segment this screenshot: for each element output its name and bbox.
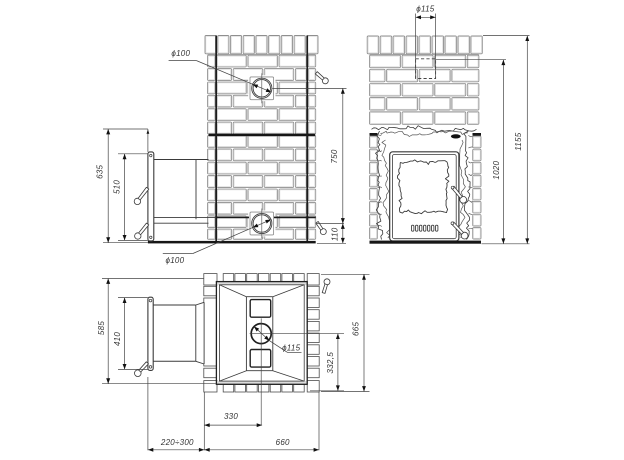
- svg-text:635: 635: [96, 164, 105, 178]
- svg-text:ϕ115: ϕ115: [282, 343, 301, 352]
- svg-text:665: 665: [351, 322, 360, 336]
- svg-text:750: 750: [330, 149, 339, 163]
- svg-text:332,5: 332,5: [326, 352, 335, 374]
- svg-text:330: 330: [224, 412, 238, 421]
- svg-text:1020: 1020: [492, 161, 501, 180]
- svg-text:1155: 1155: [514, 132, 523, 151]
- svg-text:220÷300: 220÷300: [160, 438, 194, 447]
- svg-text:ϕ115: ϕ115: [416, 4, 435, 13]
- svg-text:ϕ100: ϕ100: [171, 49, 190, 58]
- svg-text:410: 410: [113, 332, 122, 346]
- svg-text:510: 510: [112, 180, 121, 194]
- svg-text:660: 660: [276, 438, 290, 447]
- svg-text:ϕ100: ϕ100: [166, 256, 185, 265]
- svg-text:585: 585: [97, 321, 106, 335]
- svg-text:110: 110: [331, 227, 340, 241]
